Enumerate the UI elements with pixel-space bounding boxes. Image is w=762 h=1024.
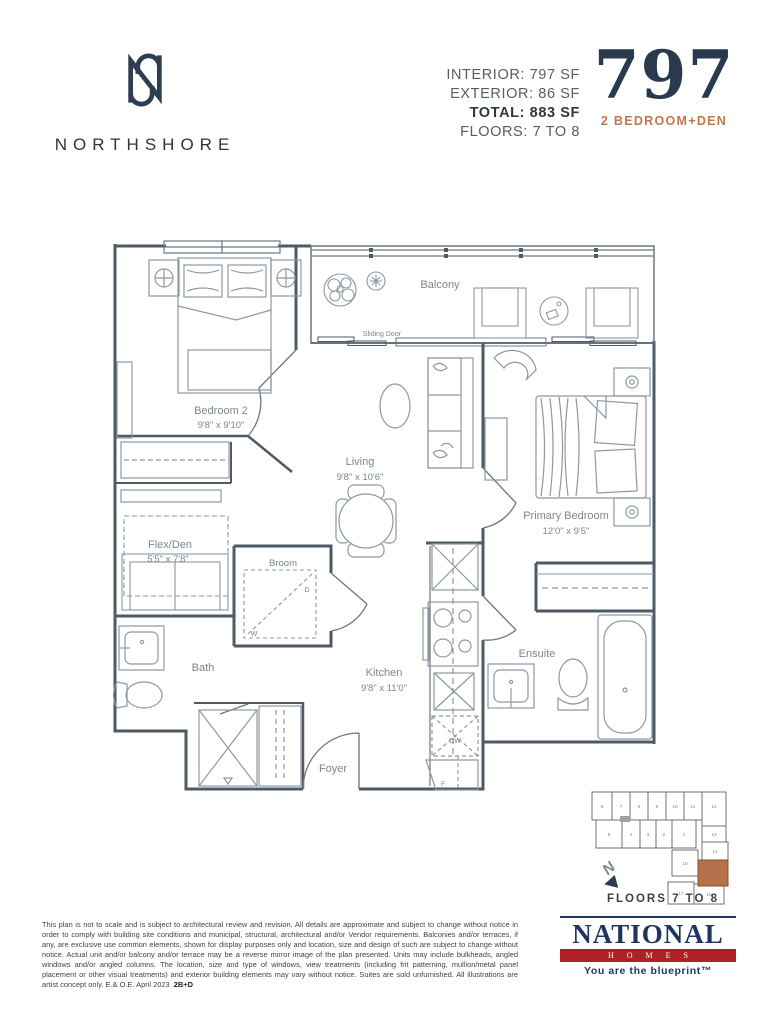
fridge-label: F [441, 781, 445, 788]
plan-code: 2B+D [174, 980, 193, 989]
bathtub [598, 615, 652, 739]
monogram-s-bottom-hook [131, 86, 153, 104]
keyplan-unit-11: 11 [691, 804, 696, 810]
dining-set [336, 485, 396, 557]
primary-nightstand-2 [614, 498, 650, 526]
foyer-closet [259, 706, 301, 786]
ensuite-toilet [558, 659, 588, 710]
sofa [428, 358, 473, 468]
keyplan-unit-12: 12 [711, 804, 717, 810]
keyplan-unit-1: 1 [683, 832, 686, 838]
ensuite-door [483, 596, 516, 640]
brand-name: NORTHSHORE [20, 135, 270, 155]
northshore-monogram-icon [114, 40, 176, 120]
stat-total: TOTAL: 883 SF [330, 104, 580, 123]
keyplan-caption: FLOORS 7 TO 8 [588, 893, 738, 905]
ensuite-label: Ensuite [519, 648, 556, 660]
coffee-table [380, 384, 410, 428]
flexden-label: Flex/Den [148, 539, 192, 551]
keyplan-svg: 6 7 8 9 10 11 12 5 4 3 2 1 13 14 18 17 1… [578, 786, 730, 908]
keyplan-unit-2: 2 [663, 832, 666, 838]
kitchen-fixtures [423, 544, 478, 790]
keyplan-unit-3: 3 [647, 832, 650, 838]
foyer-label: Foyer [319, 763, 347, 775]
logo-roofline [560, 916, 736, 918]
unit-headline: 797 2 BEDROOM+DEN [588, 40, 740, 128]
unit-number: 797 [588, 40, 740, 110]
bedroom2-dims: 9'8" x 9'10" [198, 420, 245, 431]
primary-dims: 12'0" x 9'5" [543, 526, 590, 537]
dishwasher [432, 716, 478, 756]
broom-door [331, 573, 367, 631]
logo-tagline: You are the blueprint™ [560, 965, 736, 977]
keyplan-unit-10: 10 [672, 804, 678, 810]
plant-small-icon [367, 272, 385, 290]
shower [199, 710, 257, 786]
north-arrow-icon: N [593, 858, 628, 893]
disclaimer-text: This plan is not to scale and is subject… [42, 920, 518, 988]
stat-interior: INTERIOR: 797 SF [330, 66, 580, 85]
brand-block: NORTHSHORE [20, 40, 270, 155]
bath-fixtures [114, 626, 302, 786]
keyplan-unit-5: 5 [608, 832, 611, 838]
primary-chair [494, 350, 536, 380]
stat-exterior: EXTERIOR: 86 SF [330, 85, 580, 104]
stat-floors: FLOORS: 7 TO 8 [330, 123, 580, 142]
broom-label: Broom [269, 558, 297, 569]
doors [220, 350, 516, 789]
dishwasher-label: DW [449, 738, 461, 745]
shower-door [220, 704, 248, 714]
keyplan-unit-6: 6 [601, 804, 604, 810]
north-letter: N [599, 858, 619, 879]
primary-dresser [485, 418, 507, 480]
flexden-dims: 5'5" x 7'8" [147, 554, 189, 565]
balcony-furniture [324, 272, 638, 338]
disclaimer: This plan is not to scale and is subject… [42, 920, 518, 989]
keyplan: 6 7 8 9 10 11 12 5 4 3 2 1 13 14 18 17 1… [578, 786, 730, 908]
primary-nightstand-1 [614, 368, 650, 396]
bed-blanket [541, 397, 579, 497]
sliding-door-label: Sliding Door [363, 331, 402, 338]
unit-type: 2 BEDROOM+DEN [588, 114, 740, 128]
washer-label: W [251, 631, 258, 638]
bedroom2-label: Bedroom 2 [194, 405, 248, 417]
keyplan-unit-9: 9 [656, 804, 659, 810]
balcony-table [540, 297, 568, 325]
living-dims: 9'8" x 10'6" [337, 472, 384, 483]
keyplan-unit-18: 18 [682, 861, 688, 867]
floor-plan: Bedroom 2 9'8" x 9'10" Balcony Sliding D… [96, 230, 696, 812]
washer-dryer [244, 570, 316, 638]
bath-label: Bath [192, 662, 215, 674]
fridge [426, 760, 478, 790]
bedroom2-window [164, 241, 280, 253]
stove [423, 602, 478, 666]
logo-homes-bar: HOMES [560, 949, 736, 962]
keyplan-unit-14: 14 [712, 849, 718, 855]
entry-door [303, 733, 359, 789]
keyplan-unit-7: 7 [620, 804, 623, 810]
keyplan-unit-15: 15 [710, 871, 716, 877]
monogram-n-stroke [131, 55, 160, 102]
logo-national-text: NATIONAL [560, 920, 736, 948]
primary-furniture [485, 350, 654, 588]
bath-toilet [114, 682, 163, 708]
living-label: Living [346, 456, 375, 468]
primary-door [483, 468, 516, 528]
keyplan-unit-4: 4 [630, 832, 633, 838]
primary-label: Primary Bedroom [523, 510, 609, 522]
kitchen-dims: 9'8" x 11'0" [361, 683, 407, 694]
bedroom2-furniture [117, 258, 301, 502]
plant-icon [324, 274, 356, 306]
keyplan-unit-8: 8 [638, 804, 641, 810]
keyplan-cells [592, 792, 728, 904]
kitchen-label: Kitchen [366, 667, 403, 679]
balcony-label: Balcony [420, 279, 460, 291]
keyplan-unit-13: 13 [711, 832, 717, 838]
dryer-label: D [304, 587, 309, 594]
floor-plan-svg: Bedroom 2 9'8" x 9'10" Balcony Sliding D… [96, 230, 696, 812]
logo-homes-text: HOMES [595, 951, 701, 960]
unit-stats: INTERIOR: 797 SF EXTERIOR: 86 SF TOTAL: … [330, 66, 580, 142]
national-homes-logo: NATIONAL HOMES You are the blueprint™ [560, 916, 736, 977]
